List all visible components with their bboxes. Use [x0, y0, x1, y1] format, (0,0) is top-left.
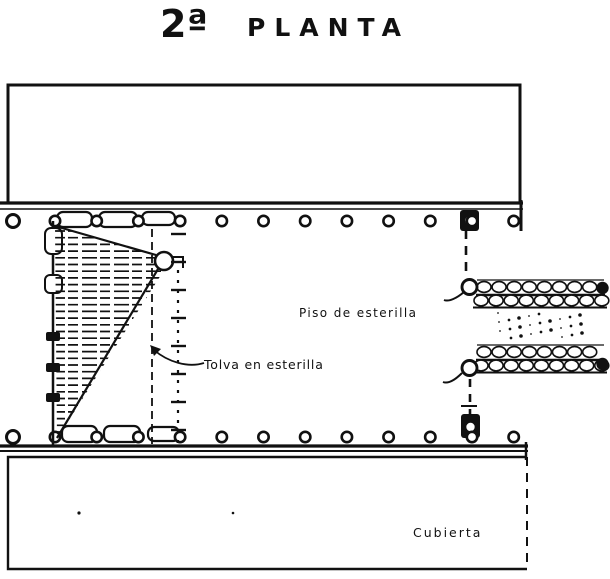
ink-dots [77, 511, 234, 514]
label-tolva: Tolva en esterilla [203, 357, 324, 372]
roof-plane-top [8, 85, 520, 203]
floor-plan-drawing: Piso de esterilla Tolva en esterilla Cub… [0, 0, 610, 579]
tolva-leader-arrow [150, 345, 204, 365]
label-cubierta: Cubierta [413, 525, 482, 540]
drawing-sheet: 2ª PLANTA [0, 0, 610, 579]
bottom-post-row [7, 414, 519, 444]
roof-plane-bottom [8, 457, 527, 569]
stipple-area [497, 312, 584, 339]
hopper-junction-circle [155, 252, 173, 270]
top-post-row [7, 210, 519, 231]
label-piso: Piso de esterilla [299, 306, 417, 320]
walkway-top [444, 280, 609, 308]
walkway-bottom [443, 345, 609, 383]
